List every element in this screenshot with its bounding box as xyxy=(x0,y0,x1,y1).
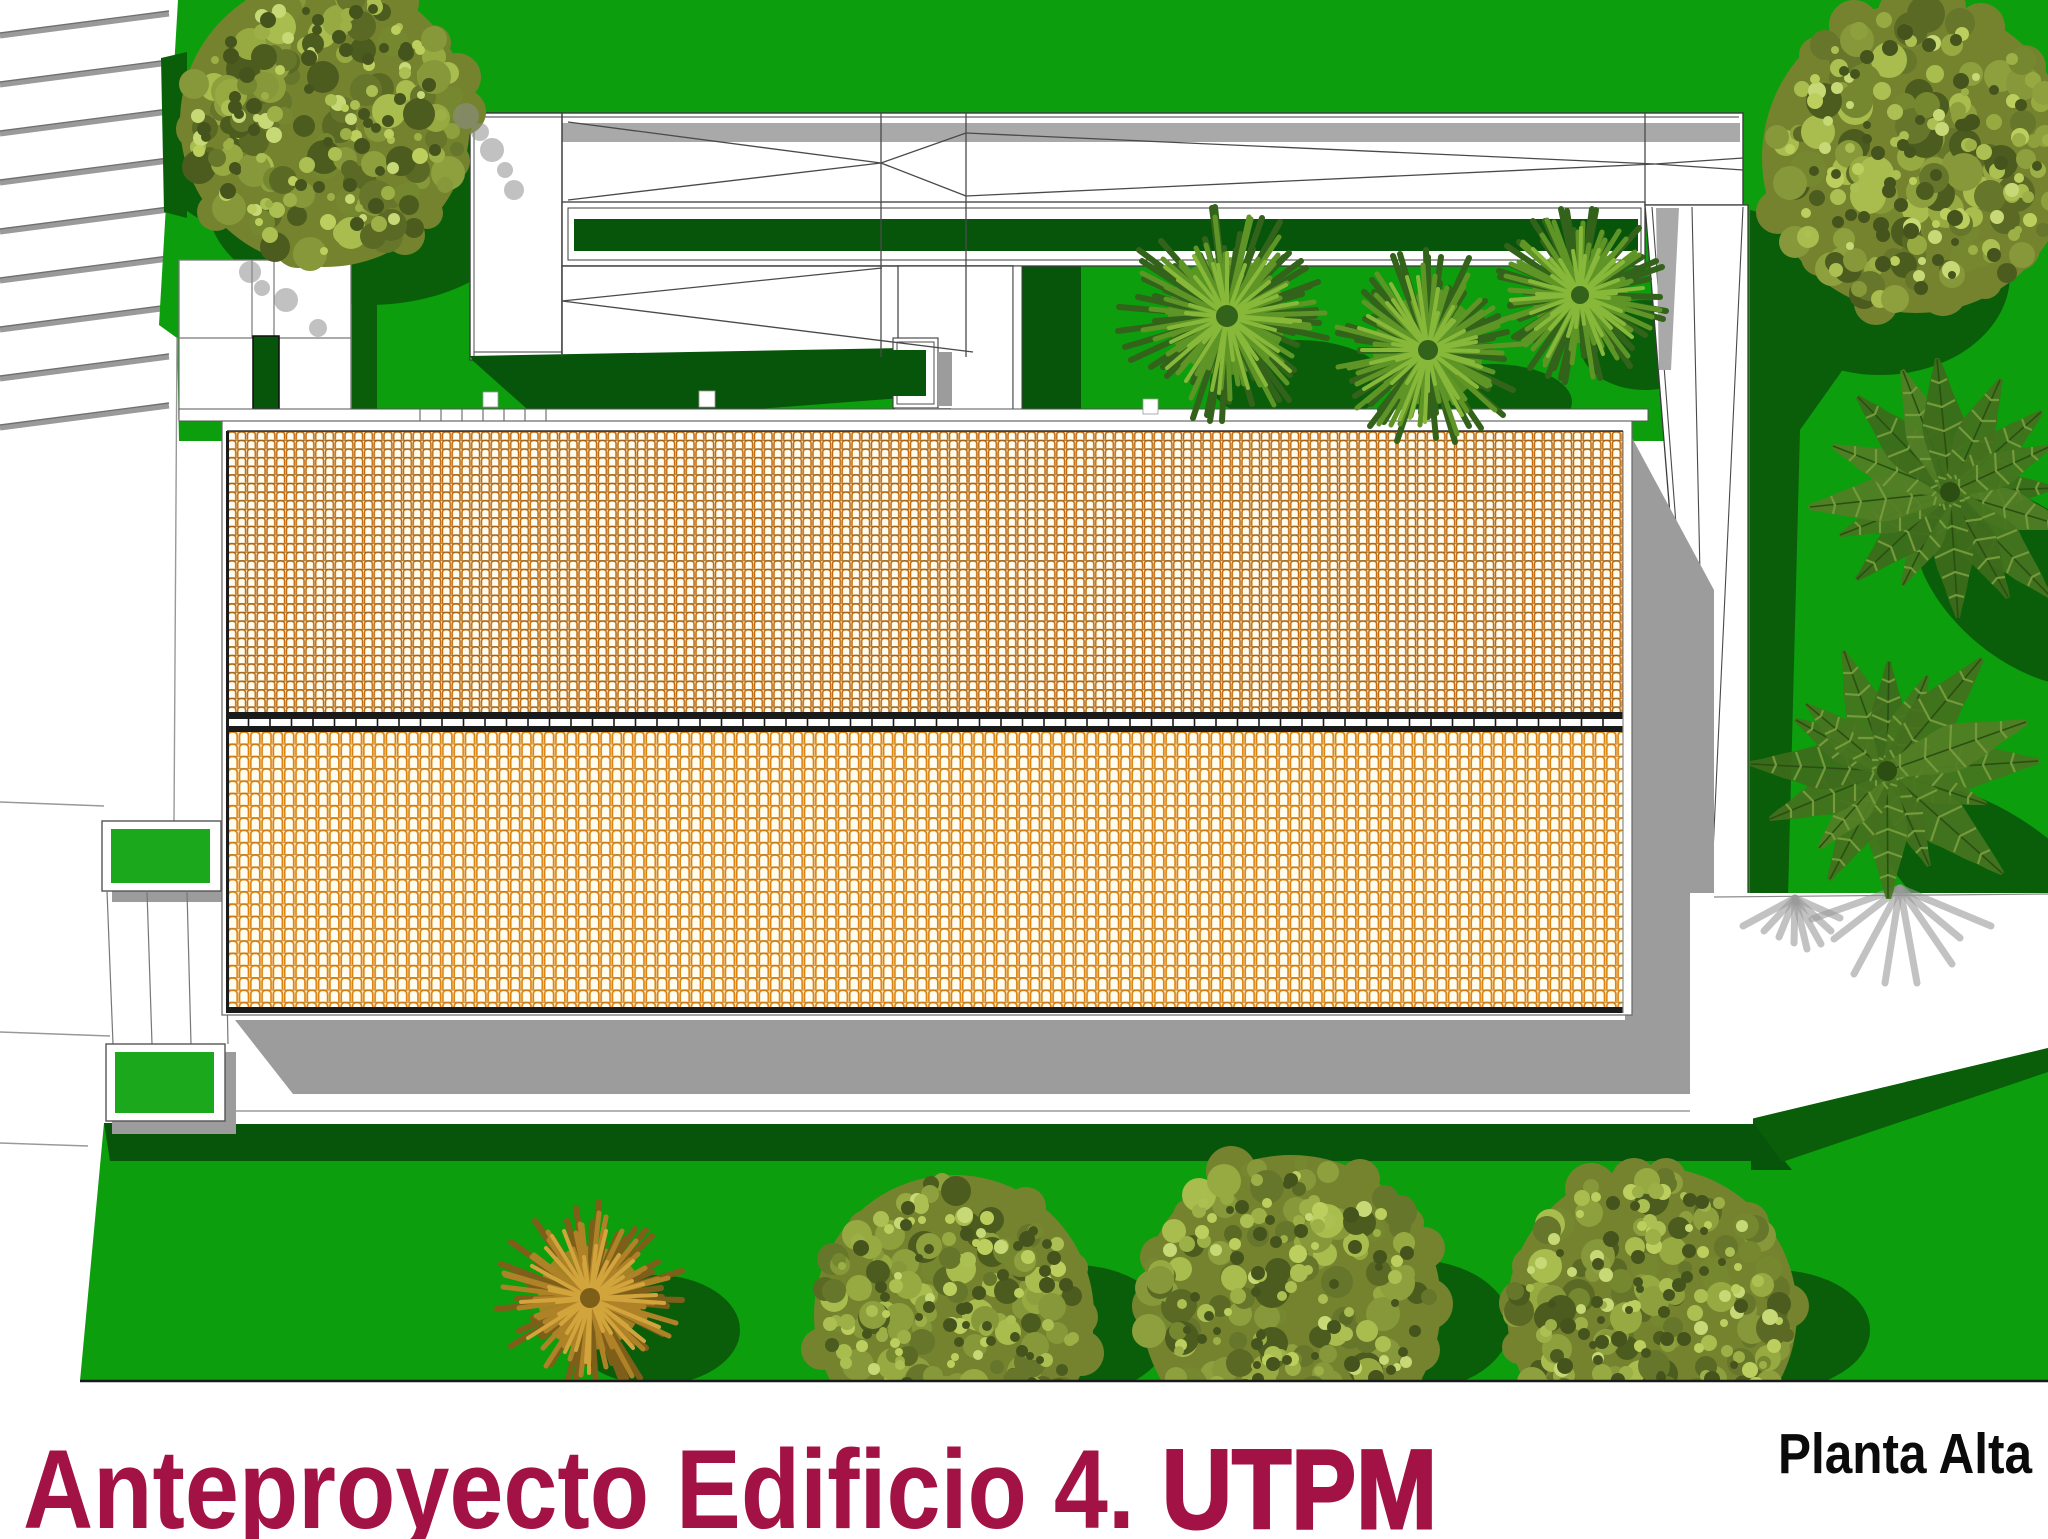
svg-text:Anteproyecto Edificio 4. UTPM: Anteproyecto Edificio 4. UTPM xyxy=(23,1427,1437,1539)
svg-text:Planta Alta: Planta Alta xyxy=(1778,1422,2033,1486)
